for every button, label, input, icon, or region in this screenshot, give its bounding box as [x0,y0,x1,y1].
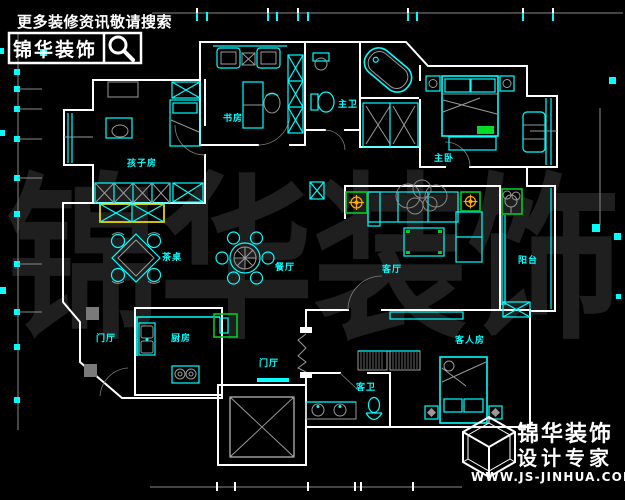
label-inner-hall: 门厅 [259,357,279,369]
label-kids-room: 孩子房 [127,157,157,169]
label-living: 客厅 [381,263,402,275]
bed-runner [477,126,494,134]
label-dining: 餐厅 [274,261,295,273]
label-kitchen: 厨房 [171,332,191,344]
label-foyer: 门厅 [96,332,116,344]
branding-website: WWW.JS-JINHUA.COM [471,470,625,484]
branding-tagline: 更多装修资讯敬请搜索 [17,13,172,31]
label-guest-room: 客人房 [454,334,485,346]
label-balcony: 阳台 [518,254,538,266]
threshold [257,378,289,382]
label-guest-bath: 客卫 [355,381,376,393]
floorplan-poster: 锦华装饰 [0,0,625,500]
label-tea-table: 茶桌 [161,251,182,263]
floorplan-canvas: 锦华装饰 [0,0,625,500]
branding-logo-text: 锦华装饰 [13,38,97,61]
branding-company: 锦华装饰 [517,421,613,447]
label-study: 书房 [223,112,243,124]
label-master-bath: 主卫 [338,98,358,110]
branding-slogan: 设计专家 [517,446,613,470]
label-master-bedroom: 主卧 [434,152,454,164]
